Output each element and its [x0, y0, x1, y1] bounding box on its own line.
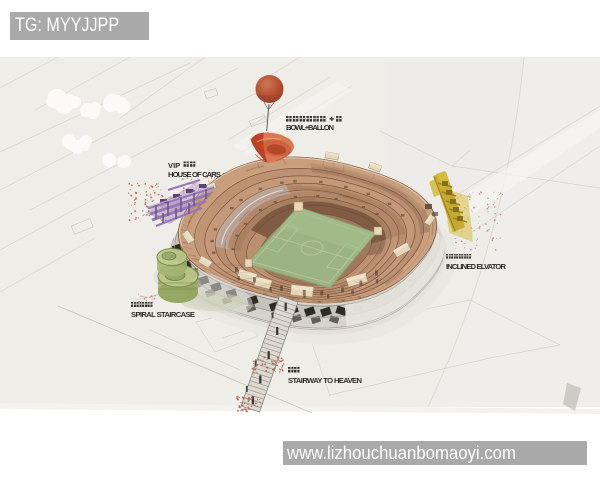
svg-text:VIP: VIP — [168, 161, 180, 170]
svg-text:STAIRWAY TO HEAVEN: STAIRWAY TO HEAVEN — [288, 376, 362, 385]
svg-text:HOUSE OF CARS: HOUSE OF CARS — [168, 170, 221, 179]
svg-text:BOWL+BALLON: BOWL+BALLON — [286, 123, 334, 132]
svg-text:SPIRAL STAIRCASE: SPIRAL STAIRCASE — [131, 310, 195, 319]
svg-text:INCLINED ELVATOR: INCLINED ELVATOR — [446, 262, 507, 271]
